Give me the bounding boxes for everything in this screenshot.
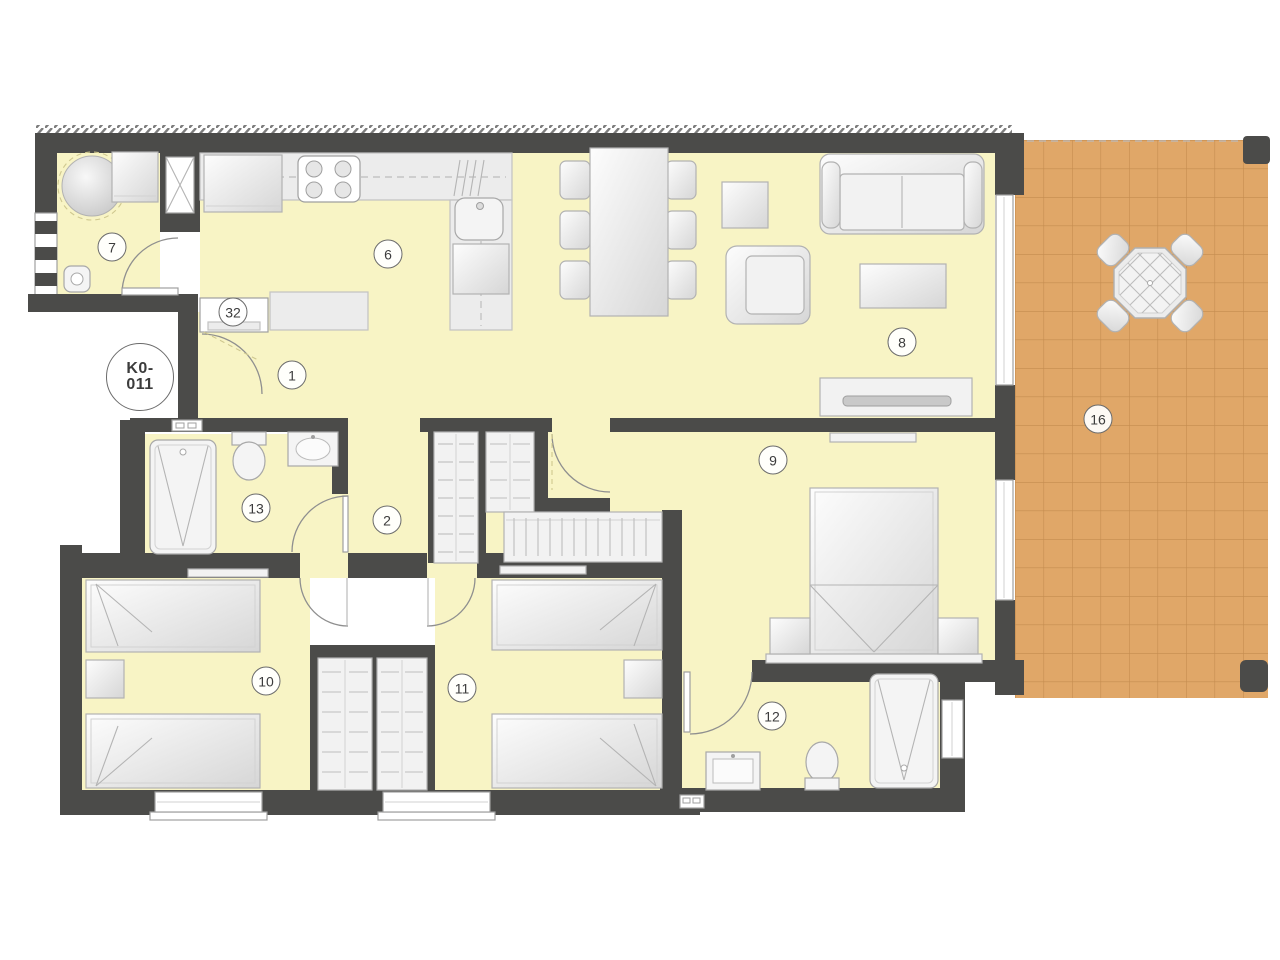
room-label-bedroom3: 11 [448, 674, 477, 703]
floor-plan-drawing [0, 0, 1280, 960]
dining-chair [666, 211, 696, 249]
headboard [500, 566, 586, 574]
unit-id-line1: K0- [126, 361, 153, 377]
hall-wardrobe [486, 432, 534, 512]
tv-sideboard [820, 378, 972, 416]
room-label-bathroom2: 12 [758, 702, 787, 731]
room-label-bathroom-main: 13 [242, 494, 271, 523]
headboard [188, 569, 268, 577]
room-label-utility: 7 [98, 233, 127, 262]
room-label-bedroom-main: 9 [759, 446, 788, 475]
shower [870, 674, 938, 788]
shower [150, 440, 216, 554]
built-in-wardrobe [377, 658, 427, 790]
washbasin [706, 752, 760, 790]
kitchen-peninsula [270, 292, 368, 330]
unit-id-line2: 011 [126, 377, 153, 393]
sideboard [830, 433, 916, 442]
window-sill [150, 812, 267, 820]
exterior-hatch [35, 125, 1012, 133]
sofa [820, 154, 984, 234]
armchair [726, 246, 810, 324]
side-table [722, 182, 768, 228]
nightstand [624, 660, 662, 698]
room-label-hallway: 2 [373, 506, 402, 535]
room-label-entrance: 32 [219, 298, 248, 327]
utility-door-leaf [122, 288, 178, 295]
single-bed [86, 714, 260, 788]
nightstand [770, 618, 810, 654]
single-bed [86, 580, 260, 652]
floor-plan: 7 32 1 6 8 9 13 2 10 11 12 16 K0- 011 [0, 0, 1280, 960]
fridge [204, 155, 282, 212]
dining-table [590, 148, 668, 316]
room-label-kitchen: 6 [374, 240, 403, 269]
room-label-entrance-hall: 1 [278, 361, 307, 390]
toilet [232, 432, 266, 480]
coffee-table [860, 264, 946, 308]
tv [843, 396, 951, 406]
headboard [766, 654, 982, 663]
nightstand [938, 618, 978, 654]
dishwasher [453, 244, 509, 294]
room-label-bedroom2: 10 [252, 667, 281, 696]
terrace-floor [1015, 136, 1270, 698]
nightstand [86, 660, 124, 698]
unit-id-badge: K0- 011 [106, 343, 174, 411]
dining-chair [560, 161, 590, 199]
terrace-post [1240, 660, 1268, 692]
toilet [805, 742, 839, 790]
window-sill [378, 812, 495, 820]
dining-chair [560, 261, 590, 299]
dining-chair [560, 211, 590, 249]
washbasin [288, 432, 338, 466]
room-label-terrace: 16 [1084, 405, 1113, 434]
single-bed [492, 714, 662, 788]
bathroom2-door-leaf [684, 672, 690, 732]
walk-in-closet [504, 512, 662, 562]
bathroom-main-door-leaf [343, 496, 348, 552]
double-bed [810, 488, 938, 655]
terrace-post [1243, 136, 1270, 164]
built-in-wardrobe [318, 658, 372, 790]
washing-machine [112, 152, 158, 202]
dining-chair [666, 261, 696, 299]
single-bed [492, 580, 662, 650]
hall-wardrobe [434, 432, 478, 563]
room-label-living-dining: 8 [888, 328, 917, 357]
dining-chair [666, 161, 696, 199]
